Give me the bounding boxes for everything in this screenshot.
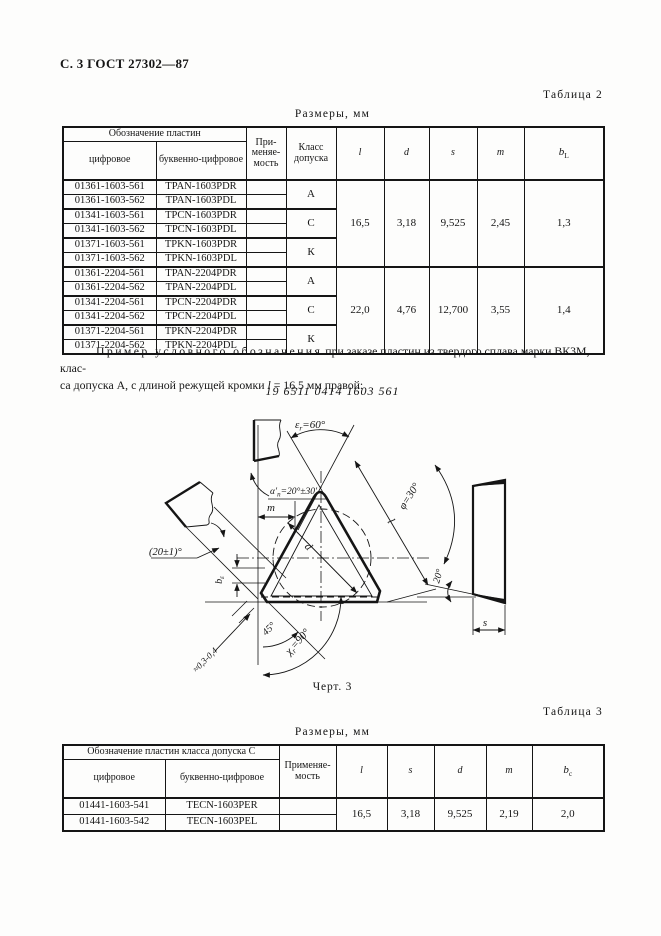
value-bL: 1,3: [524, 180, 604, 267]
col-alnum: буквенно-цифровое: [156, 142, 246, 181]
page-title: С. 3 ГОСТ 27302—87: [60, 56, 189, 72]
value-s: 9,525: [429, 180, 477, 267]
thickness-s-label: s: [483, 617, 487, 629]
col-l: l: [336, 745, 387, 798]
figure-caption: Черт. 3: [62, 681, 603, 693]
class-cell: А: [286, 180, 336, 209]
chamfer-size-label: ≈0,3-0,4: [191, 645, 220, 674]
col-s: s: [429, 127, 477, 180]
length-l-label: l: [385, 517, 397, 526]
table2-caption: Таблица 2: [543, 89, 603, 101]
col-numeric: цифровое: [63, 760, 165, 799]
table-row: 01441-1603-541TECN-1603PER 16,5 3,18 9,5…: [63, 798, 604, 815]
col-d: d: [434, 745, 486, 798]
dimension-lines: [197, 430, 505, 675]
value-d: 4,76: [384, 267, 429, 354]
value-d: 9,525: [434, 798, 486, 831]
insert-side-view: [473, 480, 505, 603]
col-class: Класс допуска: [286, 127, 336, 180]
col-bc: bc: [532, 745, 604, 798]
col-d: d: [384, 127, 429, 180]
value-bc: 2,0: [532, 798, 604, 831]
col-usage: Применяе-мость: [279, 745, 336, 798]
col-numeric: цифровое: [63, 142, 156, 181]
col-designation: Обозначение пластин класса допуска С: [63, 745, 279, 760]
value-m: 3,55: [477, 267, 524, 354]
insert-front-view: [261, 492, 381, 607]
corner-section-detail: [166, 482, 213, 527]
value-s: 12,700: [429, 267, 477, 354]
usage-cell: [246, 180, 286, 195]
table2-units-label: Размеры, мм: [62, 108, 603, 120]
value-l: 22,0: [336, 267, 384, 354]
usage-cell: [279, 798, 336, 815]
table3-units-label: Размеры, мм: [62, 726, 603, 738]
epsilon-angle-label: εr=60°: [295, 419, 326, 433]
class-cell: А: [286, 267, 336, 296]
designation-code: 19 6511 0414 1603 561: [62, 384, 603, 399]
class-cell: С: [286, 209, 336, 238]
col-alnum: буквенно-цифровое: [165, 760, 279, 799]
kappa-angle-label: χr=90°: [282, 626, 314, 659]
col-bL: bL: [524, 127, 604, 180]
table-3: Обозначение пластин класса допуска С При…: [62, 744, 605, 832]
table-row: 01361-2204-561TPAN-2204PDR А 22,0 4,76 1…: [63, 267, 604, 282]
col-designation: Обозначение пластин: [63, 127, 246, 142]
example-lead: Пример условного обозначения: [96, 344, 322, 358]
col-l: l: [336, 127, 384, 180]
angle-20-label: 20°: [431, 568, 446, 585]
table3-caption: Таблица 3: [543, 706, 603, 718]
diameter-d-label: d: [302, 541, 315, 554]
value-l: 16,5: [336, 798, 387, 831]
col-s: s: [387, 745, 434, 798]
dimension-m-label: m: [267, 502, 275, 514]
col-m: m: [486, 745, 532, 798]
value-d: 3,18: [384, 180, 429, 267]
phi-angle-label: φ=30°: [397, 480, 423, 511]
value-l: 16,5: [336, 180, 384, 267]
value-m: 2,45: [477, 180, 524, 267]
class-cell: С: [286, 296, 336, 325]
reference-lines: [151, 425, 505, 665]
col-usage: При-меняе-мость: [246, 127, 286, 180]
b-epsilon-label: bε: [214, 576, 226, 584]
col-m: m: [477, 127, 524, 180]
value-bL: 1,4: [524, 267, 604, 354]
table-row: 01361-1603-561TPAN-1603PDR А 16,5 3,18 9…: [63, 180, 604, 195]
table-2: Обозначение пластин При-меняе-мость Клас…: [62, 126, 605, 355]
value-m: 2,19: [486, 798, 532, 831]
insert-drawing: εr=60° α′n=20°±30′ φ=30° l m d bε 45° χr…: [55, 413, 615, 685]
angle-20pm1-label: (20±1)°: [149, 547, 183, 558]
class-cell: К: [286, 238, 336, 267]
alpha-angle-label: α′n=20°±30′: [270, 486, 318, 499]
angle-45-label: 45°: [260, 620, 278, 638]
value-s: 3,18: [387, 798, 434, 831]
